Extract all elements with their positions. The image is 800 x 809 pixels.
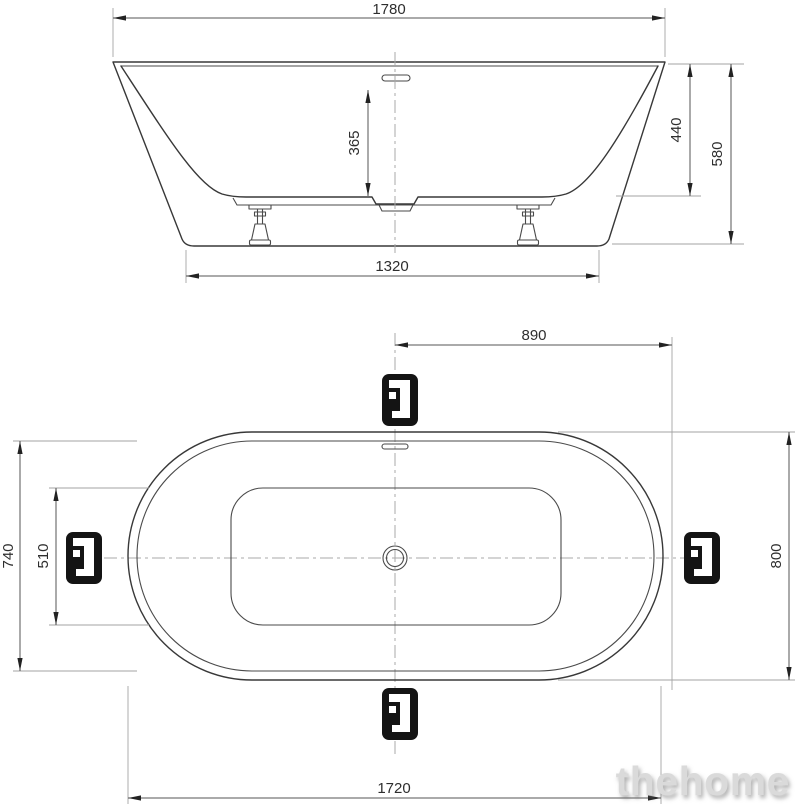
foot-left: [249, 205, 271, 245]
dim-overall-height: 580: [612, 64, 744, 244]
foot-base: [518, 240, 539, 245]
basin-floor: [231, 488, 561, 625]
dim-label-510: 510: [35, 543, 52, 568]
foot-plate: [249, 205, 271, 209]
drain-recess: [379, 205, 413, 211]
dim-label-1720: 1720: [377, 780, 410, 797]
basin-inner-wall: [121, 66, 658, 204]
foot-plate: [517, 205, 539, 209]
drawing-canvas: 1780 365: [0, 0, 800, 809]
faucet-position-icon-top: [382, 374, 418, 426]
dim-depth-to-overflow: 365: [346, 90, 368, 196]
dim-label-1320: 1320: [375, 258, 408, 275]
dim-center-to-end: 890: [395, 327, 672, 690]
bathtub-technical-drawing: 1780 365: [0, 0, 800, 809]
dim-label-800: 800: [768, 543, 785, 568]
foot-cone: [520, 224, 537, 240]
foot-base: [250, 240, 271, 245]
dim-label-1780: 1780: [372, 1, 405, 18]
dim-label-580: 580: [709, 141, 726, 166]
dim-rim-to-basin-bottom: 440: [616, 64, 744, 196]
dim-label-365: 365: [346, 130, 363, 155]
dim-overall-width: 800: [558, 432, 795, 680]
overflow-slot: [382, 75, 410, 81]
dim-label-740: 740: [0, 543, 17, 568]
dim-label-890: 890: [521, 327, 546, 344]
top-view: 890 740 510 800: [0, 327, 795, 804]
faucet-position-icon-bottom: [382, 688, 418, 740]
side-view: 1780 365: [113, 1, 744, 283]
dim-overall-length: 1780: [113, 1, 665, 57]
dim-base-length: 1320: [186, 250, 599, 283]
dim-label-440: 440: [668, 117, 685, 142]
foot-nut: [255, 212, 266, 216]
faucet-position-icon-left: [66, 532, 102, 584]
tub-outer-profile: [113, 62, 665, 246]
watermark: thehome: [616, 758, 790, 805]
foot-right: [517, 205, 539, 245]
foot-nut: [523, 212, 534, 216]
faucet-position-icon-right: [684, 532, 720, 584]
foot-cone: [252, 224, 269, 240]
